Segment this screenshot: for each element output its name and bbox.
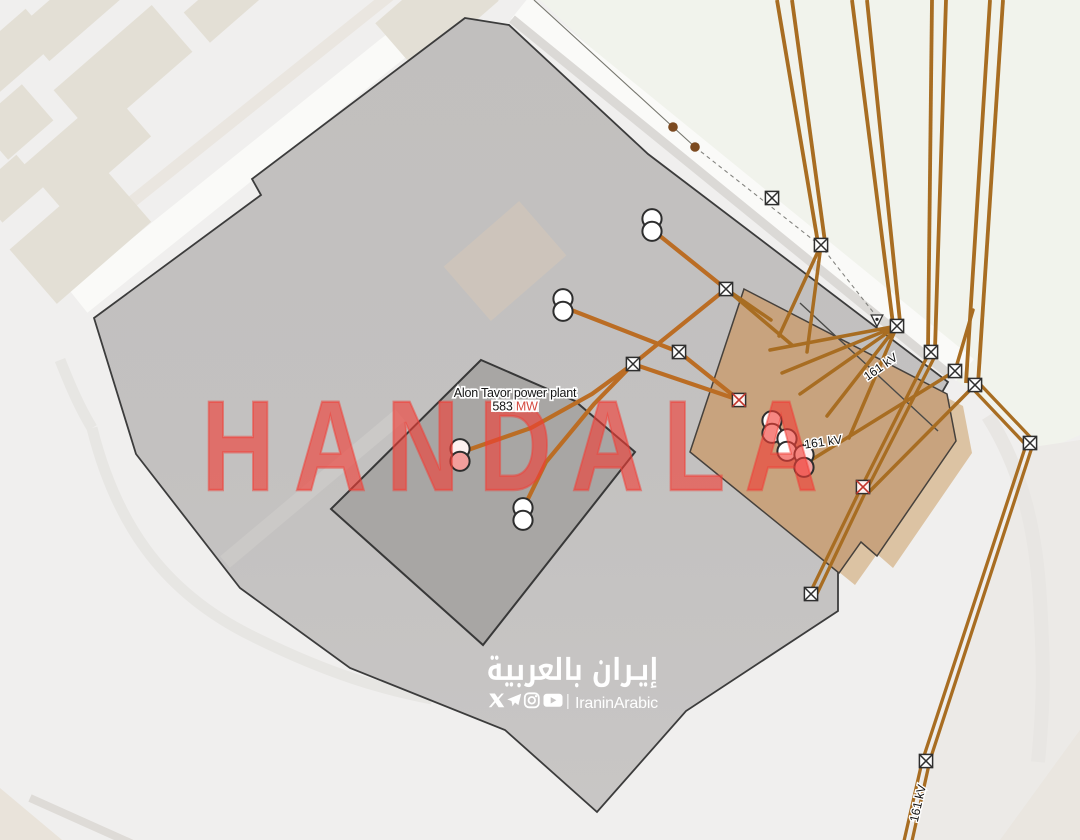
svg-text:IraninArabic: IraninArabic: [575, 695, 658, 712]
svg-text:583 MW: 583 MW: [492, 400, 538, 414]
svg-text:Alon Tavor power plant: Alon Tavor power plant: [454, 386, 577, 400]
